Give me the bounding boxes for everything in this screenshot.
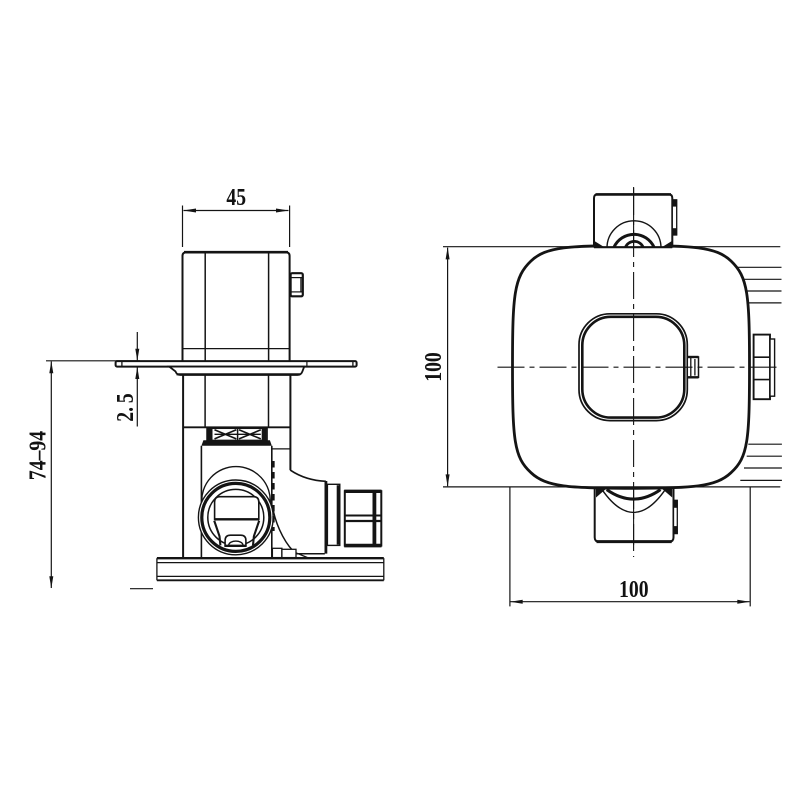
- svg-text:45: 45: [226, 183, 246, 210]
- svg-text:100: 100: [619, 575, 649, 602]
- svg-text:100: 100: [419, 352, 446, 382]
- svg-text:2. 5: 2. 5: [111, 393, 138, 422]
- svg-text:74–94: 74–94: [23, 431, 50, 480]
